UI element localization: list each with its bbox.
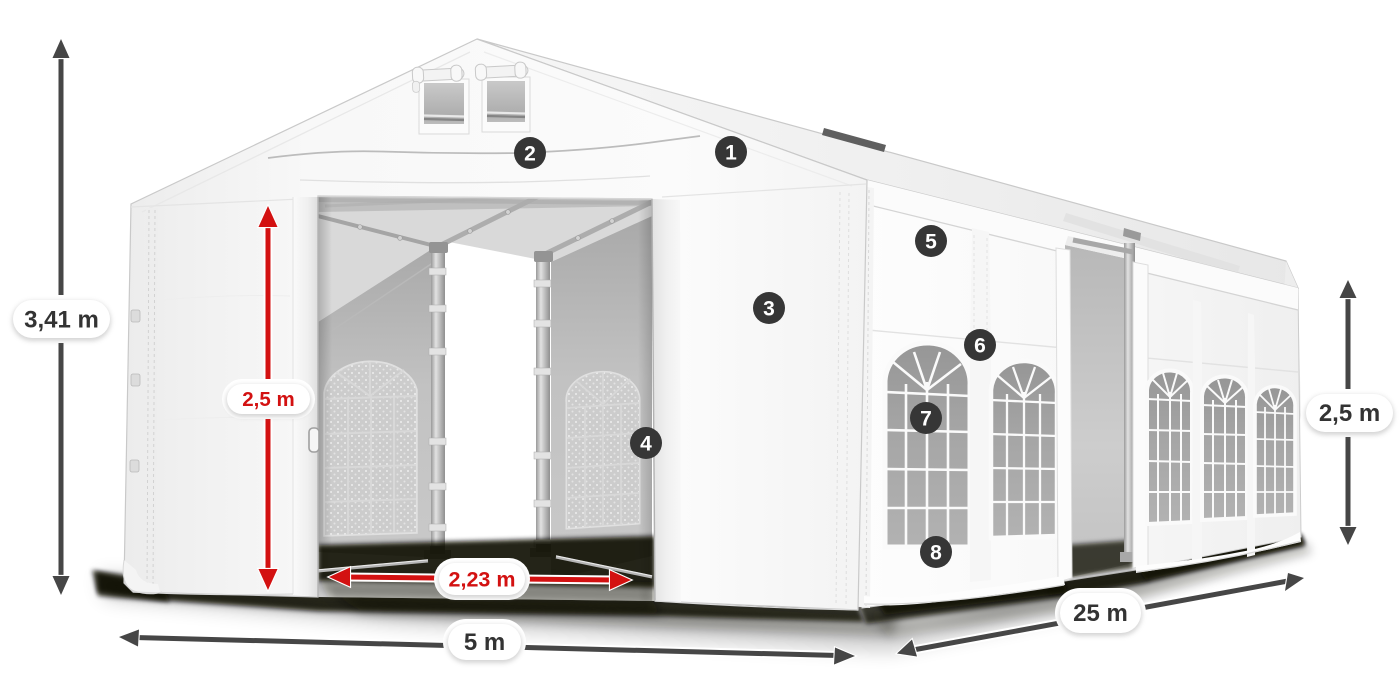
- svg-text:5 m: 5 m: [464, 629, 505, 656]
- svg-text:3: 3: [763, 298, 775, 321]
- svg-text:4: 4: [640, 433, 652, 456]
- svg-text:2: 2: [524, 143, 536, 166]
- svg-text:2,23 m: 2,23 m: [449, 568, 516, 592]
- svg-text:7: 7: [920, 408, 932, 431]
- svg-text:6: 6: [974, 335, 986, 358]
- svg-text:5: 5: [925, 231, 937, 254]
- svg-text:1: 1: [725, 142, 737, 165]
- svg-text:25 m: 25 m: [1073, 600, 1128, 627]
- svg-text:8: 8: [930, 542, 942, 565]
- svg-text:2,5 m: 2,5 m: [242, 388, 294, 411]
- svg-text:3,41 m: 3,41 m: [24, 307, 99, 334]
- svg-text:2,5 m: 2,5 m: [1319, 400, 1380, 427]
